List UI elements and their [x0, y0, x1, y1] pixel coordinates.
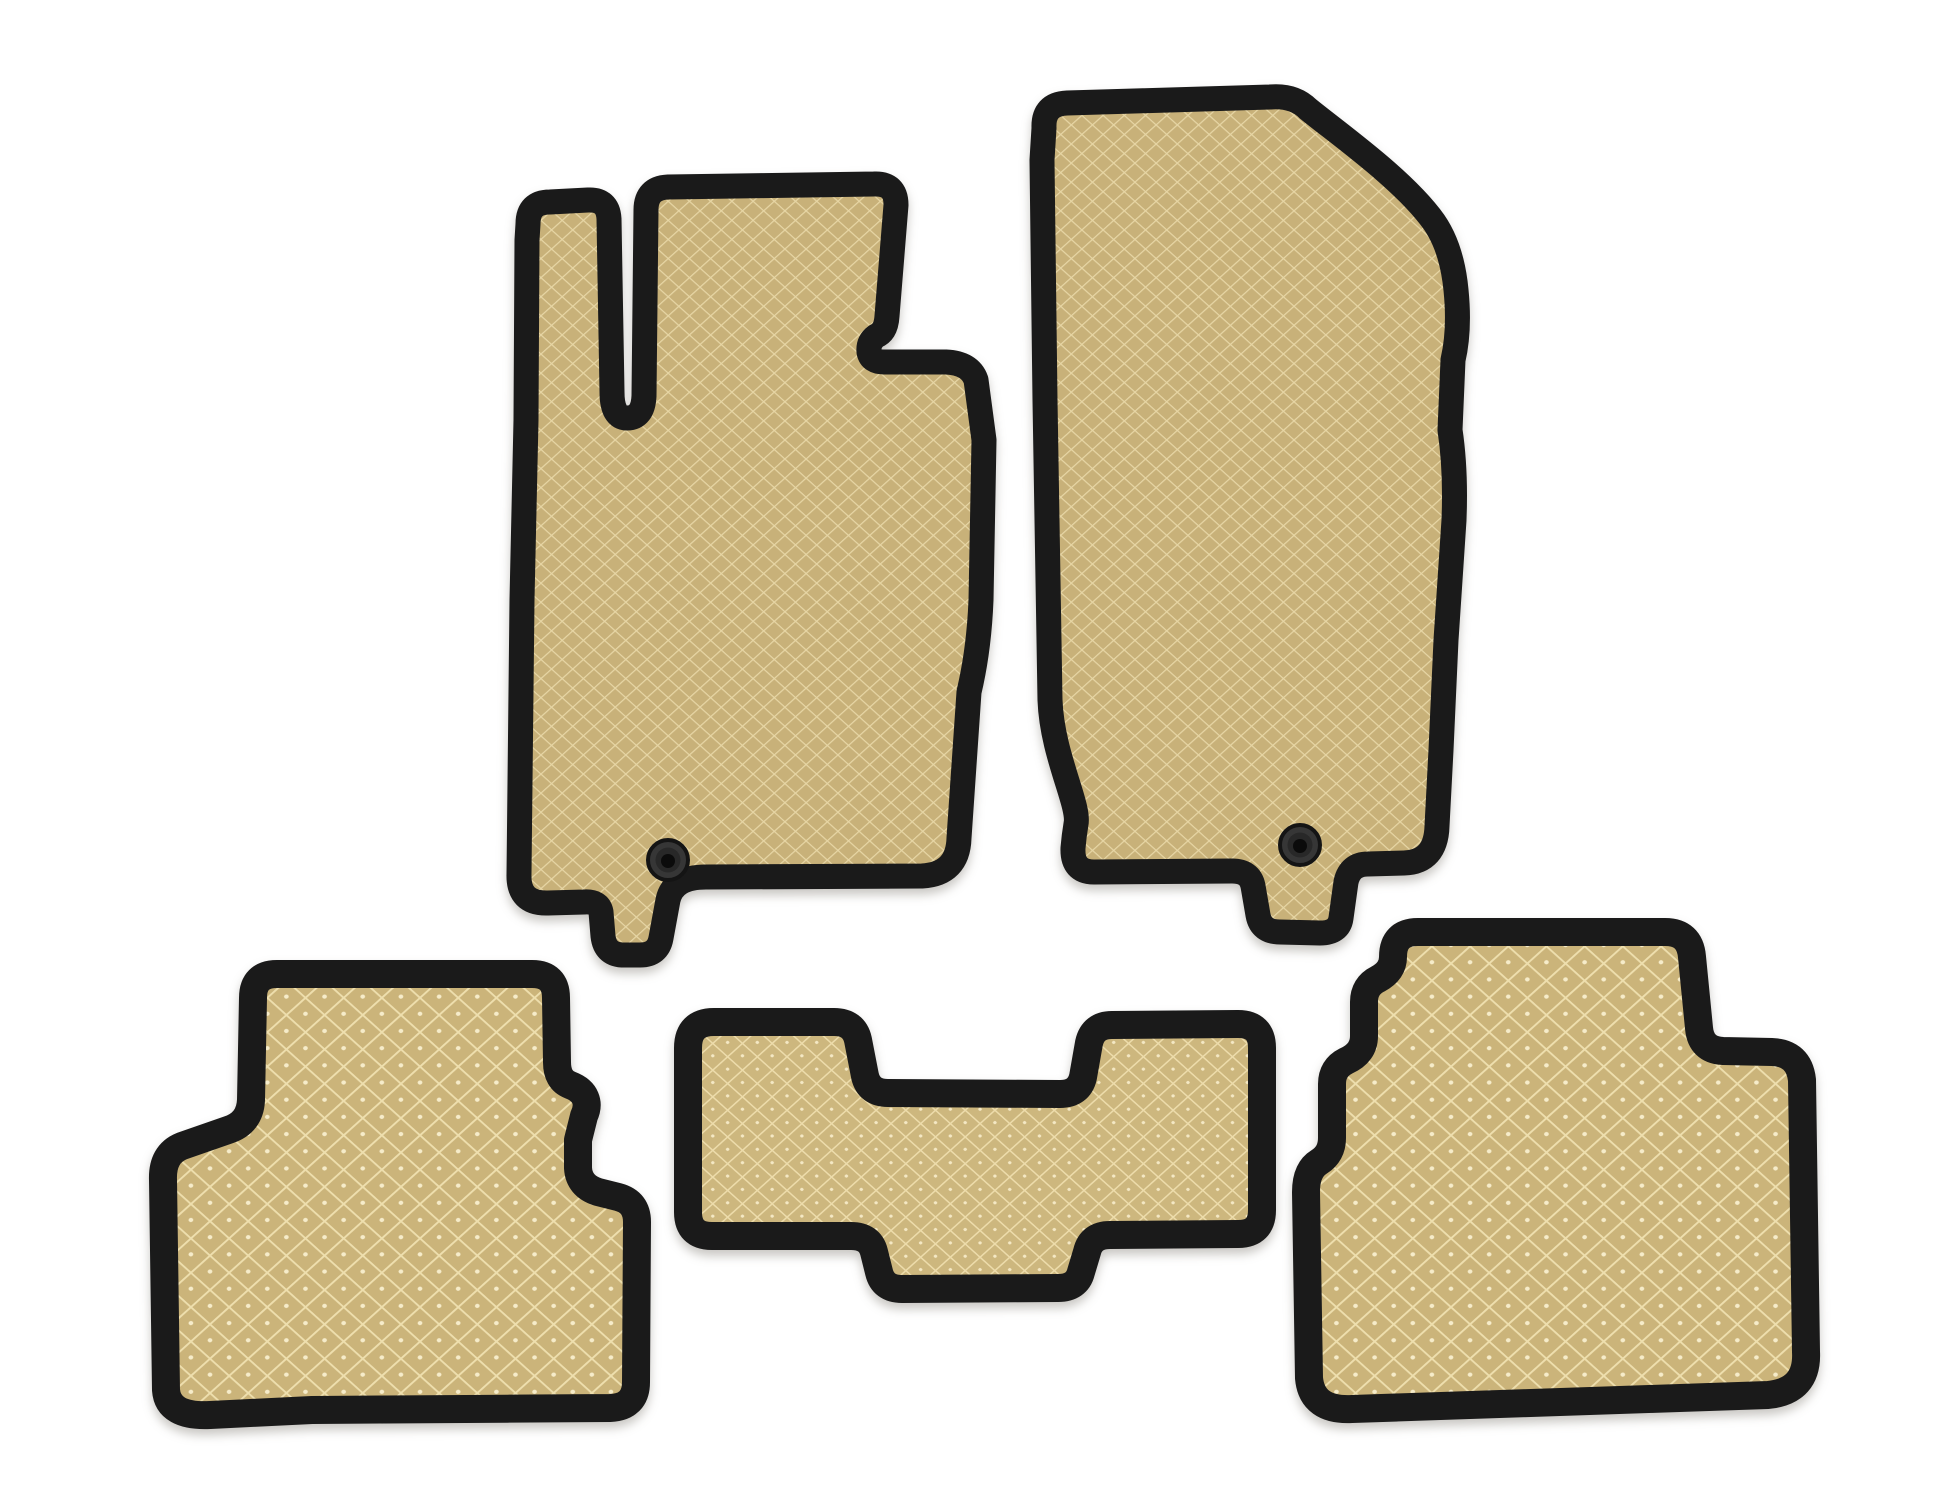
center-tunnel-mat-shape	[688, 1022, 1262, 1289]
rear-right-mat	[1306, 932, 1806, 1409]
front-left-grommet	[648, 840, 688, 880]
floor-mats-illustration	[0, 0, 1946, 1494]
rear-left-mat-shape	[163, 974, 637, 1415]
front-right-mat	[1042, 97, 1457, 933]
rear-right-mat-shape	[1306, 932, 1806, 1409]
front-left-mat	[519, 184, 984, 955]
rear-left-mat	[163, 974, 637, 1415]
front-right-mat-shape	[1042, 97, 1457, 933]
front-right-grommet	[1280, 825, 1320, 865]
grommet-hole	[661, 854, 675, 868]
page: { "page": { "title": "Set of five beige …	[0, 0, 1946, 1494]
grommet-hole	[1293, 839, 1307, 853]
front-left-mat-shape	[519, 184, 984, 955]
floor-mat-set-photo	[0, 0, 1946, 1494]
center-tunnel-mat	[688, 1022, 1262, 1289]
